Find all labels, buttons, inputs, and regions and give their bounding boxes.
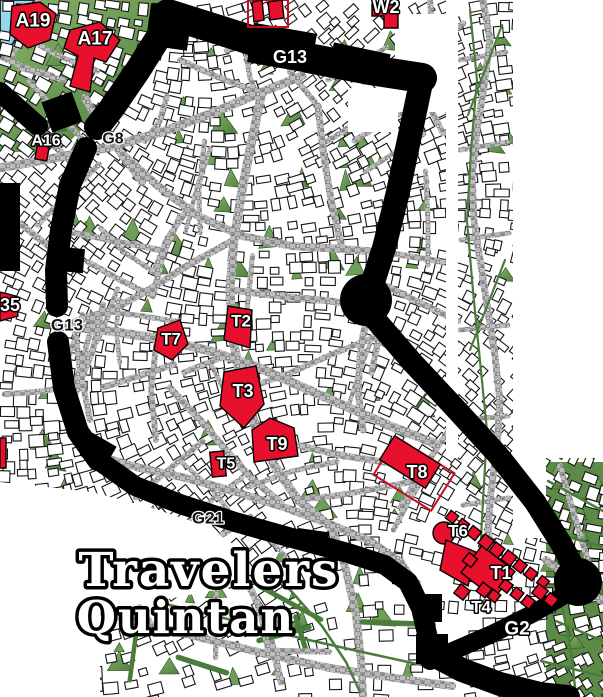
map-label-T1: T1 [490, 563, 511, 583]
city-map[interactable]: A19A17A16G8G13W235G13T7T2T3T9T5T8G21T6T1… [0, 0, 603, 697]
map-label-A35: 35 [0, 295, 20, 315]
building-north-box-b [268, 0, 284, 20]
building-north-box-a [252, 0, 264, 22]
map-label-T7: T7 [161, 330, 181, 349]
building-west-edge [0, 438, 6, 468]
map-label-A16: A16 [31, 133, 60, 150]
map-label-T8: T8 [406, 462, 427, 482]
map-label-T2: T2 [231, 312, 251, 331]
map-label-G13-west: G13 [51, 316, 83, 335]
map-label-A19: A19 [16, 11, 51, 32]
map-label-W2: W2 [373, 0, 400, 17]
map-label-G8: G8 [102, 131, 123, 148]
map-label-T3: T3 [232, 381, 253, 401]
map-label-T5: T5 [217, 456, 236, 473]
map-label-A17: A17 [78, 29, 113, 50]
map-title-line2: Quintan [77, 591, 295, 644]
map-label-T6: T6 [448, 522, 468, 541]
map-label-G2: G2 [504, 619, 529, 640]
city-map-svg: A19A17A16G8G13W235G13T7T2T3T9T5T8G21T6T1… [0, 0, 603, 697]
map-title-line1: Travelers [79, 543, 340, 598]
map-label-T4: T4 [471, 598, 491, 617]
map-label-T9: T9 [266, 434, 287, 454]
map-label-G13-north: G13 [273, 47, 307, 67]
map-label-G21: G21 [192, 509, 224, 528]
